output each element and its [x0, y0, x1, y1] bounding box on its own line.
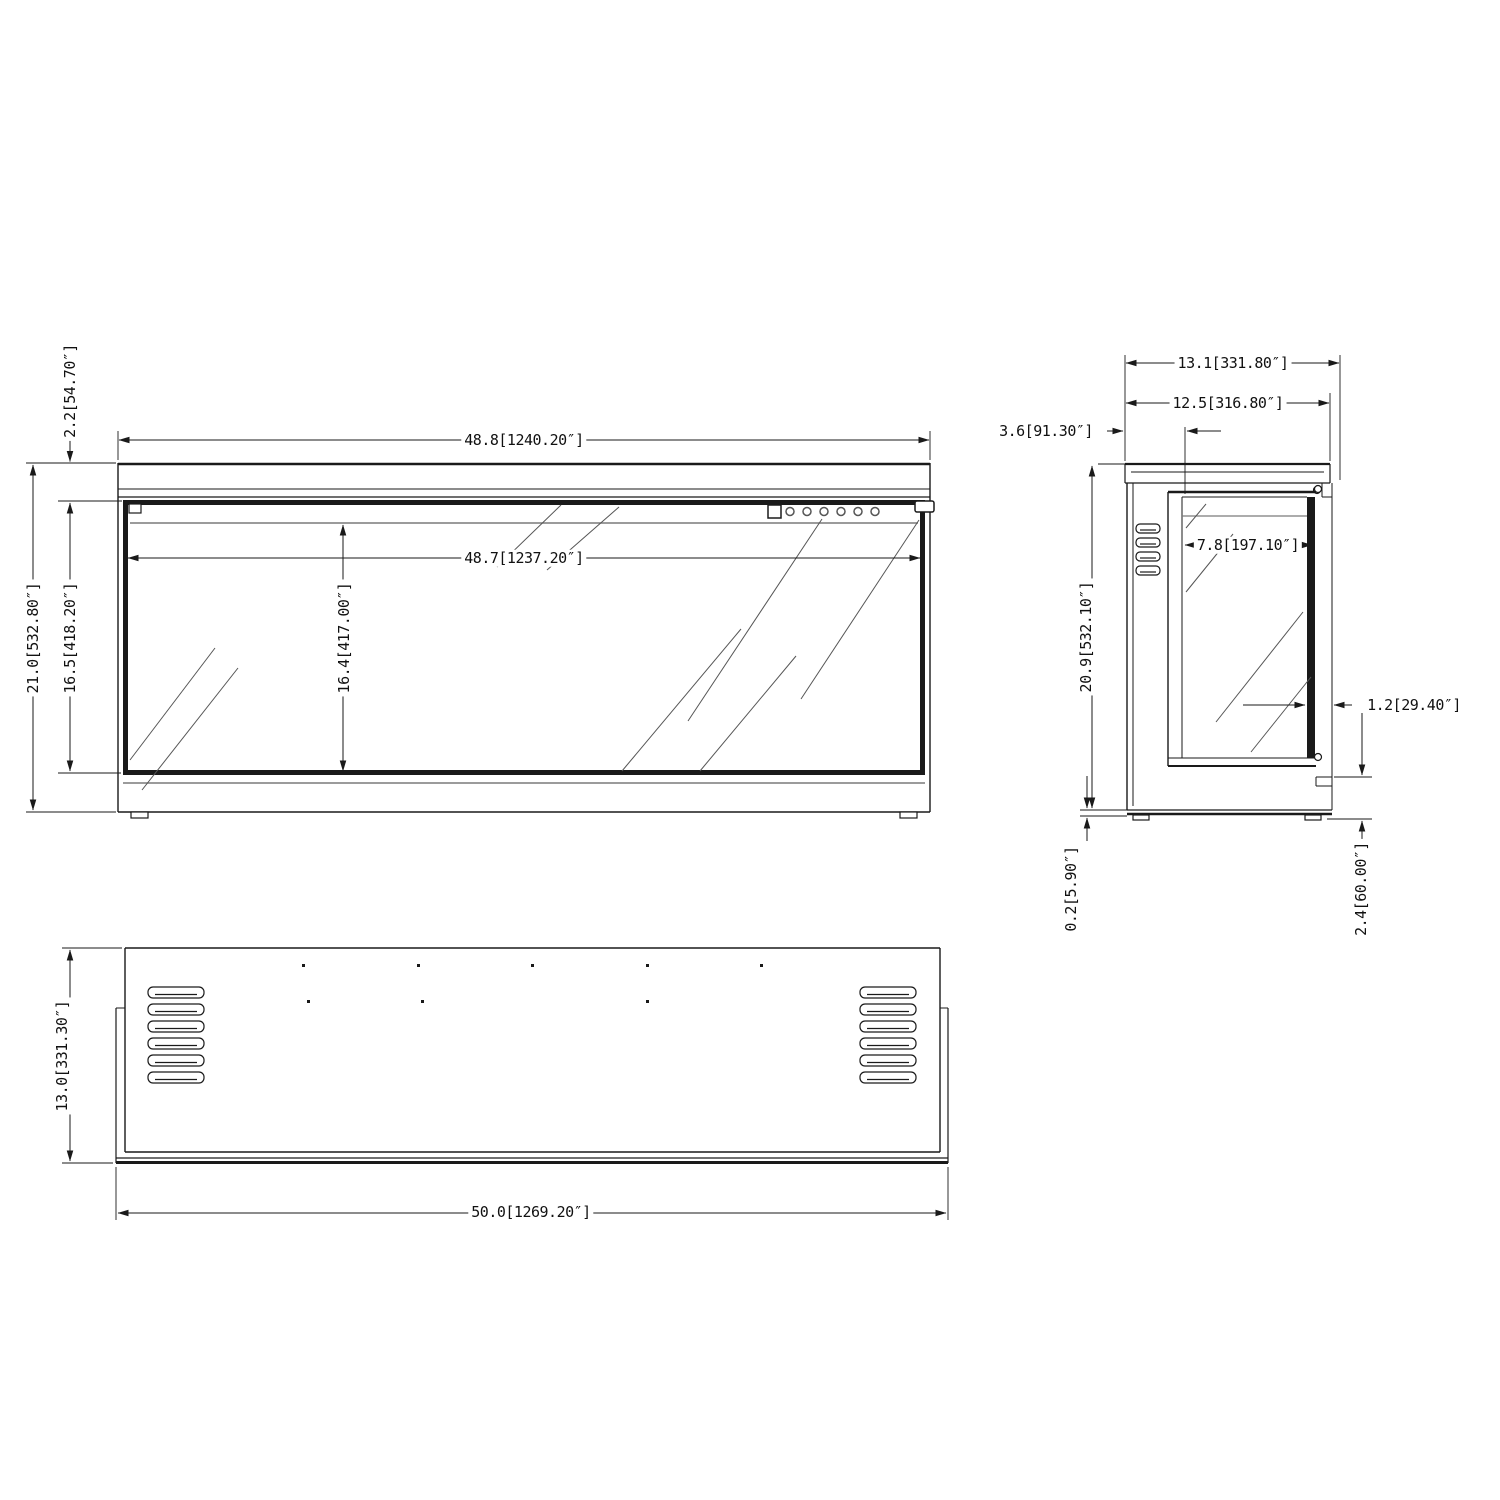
side-dim-bottom-plate: 0.2[5.90″] — [1063, 843, 1080, 934]
bottom-dim-width-overall: 50.0[1269.20″] — [468, 1204, 593, 1221]
front-view — [26, 431, 934, 818]
bottom-view-mounting-marks — [302, 964, 763, 1003]
bottom-view-body — [116, 948, 948, 1163]
front-left-foot — [131, 812, 148, 818]
side-view — [1080, 355, 1372, 841]
bottom-view — [62, 948, 948, 1220]
front-right-tab — [915, 501, 934, 512]
bottom-view-right-vents — [860, 987, 916, 1083]
front-left-notch — [129, 504, 141, 513]
front-glass-frame — [126, 503, 923, 773]
side-view-dimension-lines — [1080, 355, 1372, 841]
side-dim-bottom-front-gap: 2.4[60.00″] — [1353, 839, 1370, 939]
front-dim-width-overall: 48.8[1240.20″] — [461, 432, 586, 449]
side-dim-depth-top: 12.5[316.80″] — [1170, 395, 1287, 412]
side-dim-depth-rear: 3.6[91.30″] — [996, 423, 1096, 440]
front-view-body — [118, 463, 930, 818]
side-bottom-hinge-pin — [1315, 754, 1322, 761]
front-right-foot — [900, 812, 917, 818]
side-view-vents — [1136, 524, 1160, 575]
bottom-dim-depth-overall: 13.0[331.30″] — [54, 998, 71, 1115]
side-front-foot — [1305, 815, 1321, 820]
side-dim-depth-glass: 7.8[197.10″] — [1194, 537, 1302, 554]
front-view-dimension-lines — [26, 431, 930, 812]
front-dim-width-glass: 48.7[1237.20″] — [461, 550, 586, 567]
front-dim-height-top-section: 2.2[54.70″] — [62, 341, 79, 441]
side-rear-foot — [1133, 815, 1149, 820]
technical-drawing-sheet: 48.8[1240.20″] 48.7[1237.20″] 2.2[54.70″… — [0, 0, 1500, 1500]
front-dim-height-glass: 16.4[417.00″] — [336, 580, 353, 697]
side-dim-glass-thickness: 1.2[29.40″] — [1364, 697, 1464, 714]
side-dim-height-overall: 20.9[532.10″] — [1078, 579, 1095, 696]
bottom-view-left-vents — [148, 987, 204, 1083]
control-power-button — [768, 505, 781, 518]
front-dim-height-overall: 21.0[532.80″] — [25, 580, 42, 697]
side-glass-panel — [1307, 497, 1315, 758]
drawing-linework — [0, 0, 1500, 1500]
front-dim-height-front-panel: 16.5[418.20″] — [62, 580, 79, 697]
control-round-buttons — [786, 508, 879, 516]
side-view-door — [1168, 486, 1322, 767]
front-view-glass-reflections — [130, 505, 919, 790]
side-dim-depth-overall: 13.1[331.80″] — [1175, 355, 1292, 372]
